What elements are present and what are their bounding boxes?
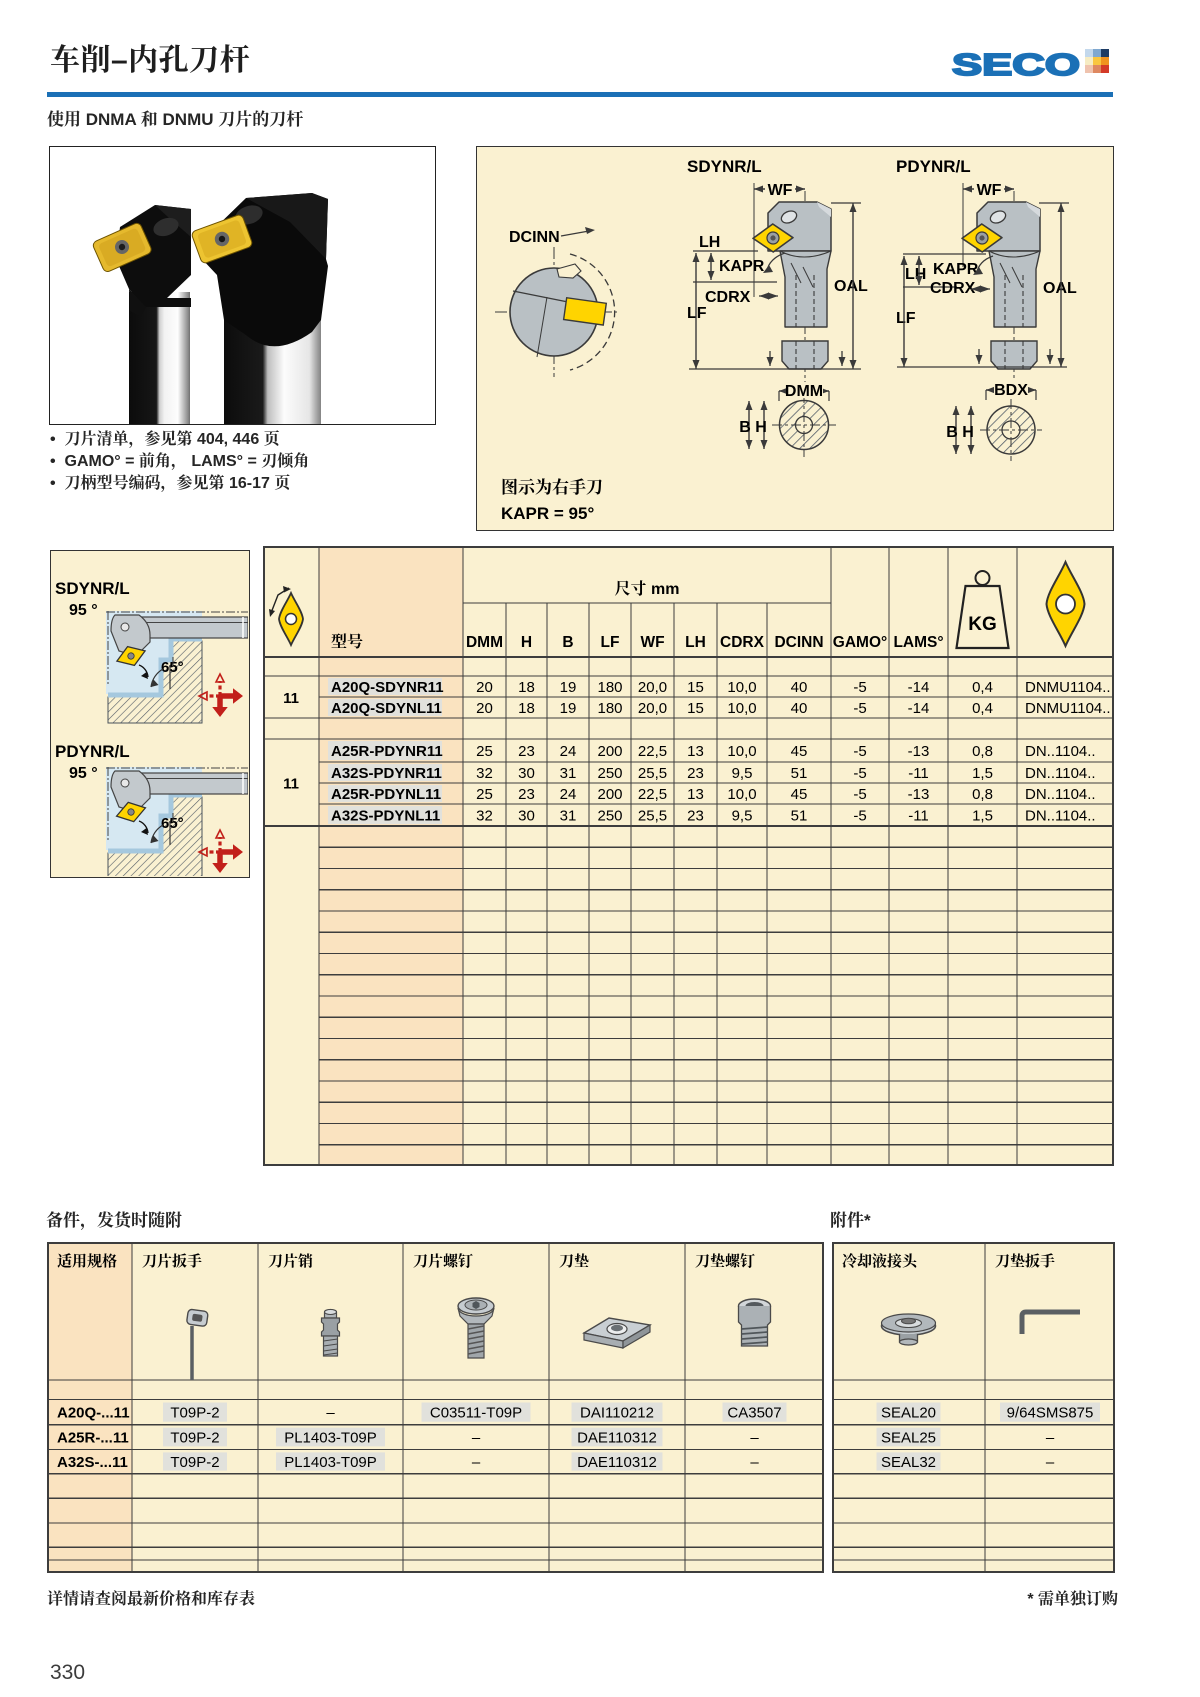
svg-text:13: 13 [687,743,704,760]
svg-text:11: 11 [283,690,299,707]
svg-text:WF: WF [640,634,664,651]
svg-text:刀垫扳手: 刀垫扳手 [995,1252,1055,1270]
svg-text:A20Q-SDYNR11: A20Q-SDYNR11 [331,679,444,696]
svg-text:25: 25 [476,786,493,803]
svg-text:CA3507: CA3507 [727,1405,781,1422]
svg-text:31: 31 [560,808,577,825]
svg-text:LH: LH [699,234,720,251]
svg-text:刀垫螺钉: 刀垫螺钉 [695,1252,755,1270]
svg-text:DNMU1104..: DNMU1104.. [1025,679,1111,696]
svg-text:LAMS°: LAMS° [893,634,943,651]
svg-text:19: 19 [560,679,577,696]
svg-text:A20Q-SDYNL11: A20Q-SDYNL11 [331,700,442,717]
svg-text:20,0: 20,0 [638,679,667,696]
svg-text:31: 31 [560,765,577,782]
svg-text:18: 18 [518,700,535,717]
svg-text:OAL: OAL [834,278,868,295]
svg-text:250: 250 [597,808,622,825]
svg-text:LF: LF [687,305,707,322]
svg-text:H: H [962,424,974,441]
svg-text:H: H [755,419,767,436]
svg-text:24: 24 [560,743,577,760]
svg-text:冷却液接头: 冷却液接头 [842,1252,919,1270]
svg-text:180: 180 [597,679,622,696]
svg-text:18: 18 [518,679,535,696]
svg-text:DMM: DMM [466,634,503,651]
svg-text:-5: -5 [853,765,866,782]
svg-text:32: 32 [476,808,493,825]
svg-text:PDYNR/L: PDYNR/L [896,157,971,176]
svg-text:KAPR: KAPR [933,261,979,278]
svg-text:-11: -11 [908,808,929,825]
svg-text:1,5: 1,5 [972,765,993,782]
svg-text:KAPR: KAPR [719,258,765,275]
svg-text:51: 51 [791,765,808,782]
svg-text:LH: LH [685,634,706,651]
svg-text:DCINN: DCINN [509,229,560,246]
svg-text:DN..1104..: DN..1104.. [1025,765,1096,782]
svg-text:DAE110312: DAE110312 [577,1454,657,1471]
svg-text:0,4: 0,4 [972,679,993,696]
svg-text:T09P-2: T09P-2 [170,1405,219,1422]
svg-text:刀片销: 刀片销 [268,1252,313,1270]
svg-text:0,8: 0,8 [972,786,993,803]
svg-text:-5: -5 [853,679,866,696]
svg-text:200: 200 [597,786,622,803]
svg-text:180: 180 [597,700,622,717]
svg-text:1,5: 1,5 [972,808,993,825]
svg-text:DMM: DMM [785,383,823,400]
svg-text:20: 20 [476,700,493,717]
svg-text:C03511-T09P: C03511-T09P [430,1405,522,1422]
svg-text:PL1403-T09P: PL1403-T09P [284,1454,377,1471]
svg-text:A25R-PDYNR11: A25R-PDYNR11 [331,743,443,760]
svg-text:25: 25 [476,743,493,760]
svg-text:刀片扳手: 刀片扳手 [142,1252,202,1270]
svg-text:CDRX: CDRX [705,289,751,306]
svg-text:B: B [946,424,958,441]
svg-text:–: – [750,1454,759,1471]
svg-text:20,0: 20,0 [638,700,667,717]
svg-text:-13: -13 [908,743,930,760]
svg-text:10,0: 10,0 [727,679,756,696]
svg-text:CDRX: CDRX [720,634,765,651]
svg-text:-5: -5 [853,786,866,803]
svg-text:SEAL20: SEAL20 [881,1405,936,1422]
svg-text:10,0: 10,0 [727,786,756,803]
svg-text:19: 19 [560,700,577,717]
svg-text:LF: LF [601,634,620,651]
svg-text:0,4: 0,4 [972,700,993,717]
svg-text:A32S-PDYNR11: A32S-PDYNR11 [331,765,442,782]
svg-text:图示为右手刀: 图示为右手刀 [501,478,603,497]
svg-text:23: 23 [518,743,535,760]
svg-text:22,5: 22,5 [638,743,667,760]
svg-text:WF: WF [977,182,1002,199]
svg-text:SEAL25: SEAL25 [881,1430,936,1447]
svg-text:刀片螺钉: 刀片螺钉 [413,1252,473,1270]
svg-text:95 °: 95 ° [69,765,98,782]
svg-text:–: – [472,1454,481,1471]
svg-text:A25R-PDYNL11: A25R-PDYNL11 [331,786,441,803]
svg-text:30: 30 [518,808,535,825]
svg-text:32: 32 [476,765,493,782]
svg-text:45: 45 [791,743,808,760]
svg-text:–: – [750,1430,759,1447]
svg-text:15: 15 [687,700,704,717]
svg-text:DN..1104..: DN..1104.. [1025,786,1096,803]
svg-text:A20Q-...11: A20Q-...11 [57,1405,130,1422]
svg-text:SDYNR/L: SDYNR/L [687,157,762,176]
svg-text:-11: -11 [908,765,929,782]
svg-text:65°: 65° [161,659,184,676]
svg-text:0,8: 0,8 [972,743,993,760]
svg-text:T09P-2: T09P-2 [170,1454,219,1471]
svg-text:DNMU1104..: DNMU1104.. [1025,700,1111,717]
svg-text:10,0: 10,0 [727,743,756,760]
svg-text:11: 11 [283,776,299,793]
svg-text:适用规格: 适用规格 [57,1252,117,1270]
svg-text:-5: -5 [853,743,866,760]
svg-text:40: 40 [791,700,808,717]
svg-text:A25R-...11: A25R-...11 [57,1430,129,1447]
svg-text:KAPR = 95°: KAPR = 95° [501,504,594,523]
svg-text:DAI110212: DAI110212 [580,1405,654,1422]
svg-text:10,0: 10,0 [727,700,756,717]
svg-text:-13: -13 [908,786,930,803]
svg-text:刀垫: 刀垫 [559,1252,589,1270]
svg-text:250: 250 [597,765,622,782]
svg-text:H: H [521,634,532,651]
svg-text:A32S-PDYNL11: A32S-PDYNL11 [331,808,440,825]
svg-text:GAMO°: GAMO° [833,634,887,651]
svg-text:25,5: 25,5 [638,808,667,825]
svg-text:DN..1104..: DN..1104.. [1025,808,1096,825]
svg-text:LH: LH [905,266,926,283]
svg-text:–: – [326,1405,335,1422]
svg-text:DAE110312: DAE110312 [577,1430,657,1447]
svg-text:23: 23 [687,765,704,782]
svg-text:PDYNR/L: PDYNR/L [55,742,130,761]
svg-text:200: 200 [597,743,622,760]
svg-text:KG: KG [968,614,997,635]
svg-text:-14: -14 [908,679,930,696]
svg-text:DN..1104..: DN..1104.. [1025,743,1096,760]
svg-text:LF: LF [896,310,916,327]
svg-text:WF: WF [768,182,793,199]
svg-text:9,5: 9,5 [732,765,753,782]
svg-text:SECO: SECO [952,47,1080,80]
svg-text:A32S-...11: A32S-...11 [57,1454,128,1471]
svg-text:15: 15 [687,679,704,696]
svg-text:24: 24 [560,786,577,803]
svg-text:95 °: 95 ° [69,602,98,619]
svg-text:尺寸 mm: 尺寸 mm [615,579,680,598]
svg-text:–: – [1046,1430,1055,1447]
svg-text:25,5: 25,5 [638,765,667,782]
svg-text:22,5: 22,5 [638,786,667,803]
svg-text:40: 40 [791,679,808,696]
svg-text:9,5: 9,5 [732,808,753,825]
svg-text:13: 13 [687,786,704,803]
svg-text:SDYNR/L: SDYNR/L [55,579,130,598]
svg-text:B: B [562,634,573,651]
svg-text:9/64SMS875: 9/64SMS875 [1007,1405,1094,1422]
svg-text:DCINN: DCINN [774,634,823,651]
svg-text:–: – [1046,1454,1055,1471]
svg-text:CDRX: CDRX [930,280,976,297]
svg-text:OAL: OAL [1043,280,1077,297]
svg-text:B: B [739,419,751,436]
svg-text:型号: 型号 [331,633,363,651]
svg-text:T09P-2: T09P-2 [170,1430,219,1447]
svg-text:BDX: BDX [994,382,1028,399]
svg-text:PL1403-T09P: PL1403-T09P [284,1430,377,1447]
svg-text:SEAL32: SEAL32 [881,1454,936,1471]
svg-text:65°: 65° [161,815,184,832]
svg-text:–: – [472,1430,481,1447]
svg-text:45: 45 [791,786,808,803]
svg-text:-5: -5 [853,700,866,717]
svg-text:51: 51 [791,808,808,825]
svg-text:23: 23 [518,786,535,803]
svg-text:-5: -5 [853,808,866,825]
svg-text:-14: -14 [908,700,930,717]
svg-text:30: 30 [518,765,535,782]
svg-text:23: 23 [687,808,704,825]
svg-text:20: 20 [476,679,493,696]
